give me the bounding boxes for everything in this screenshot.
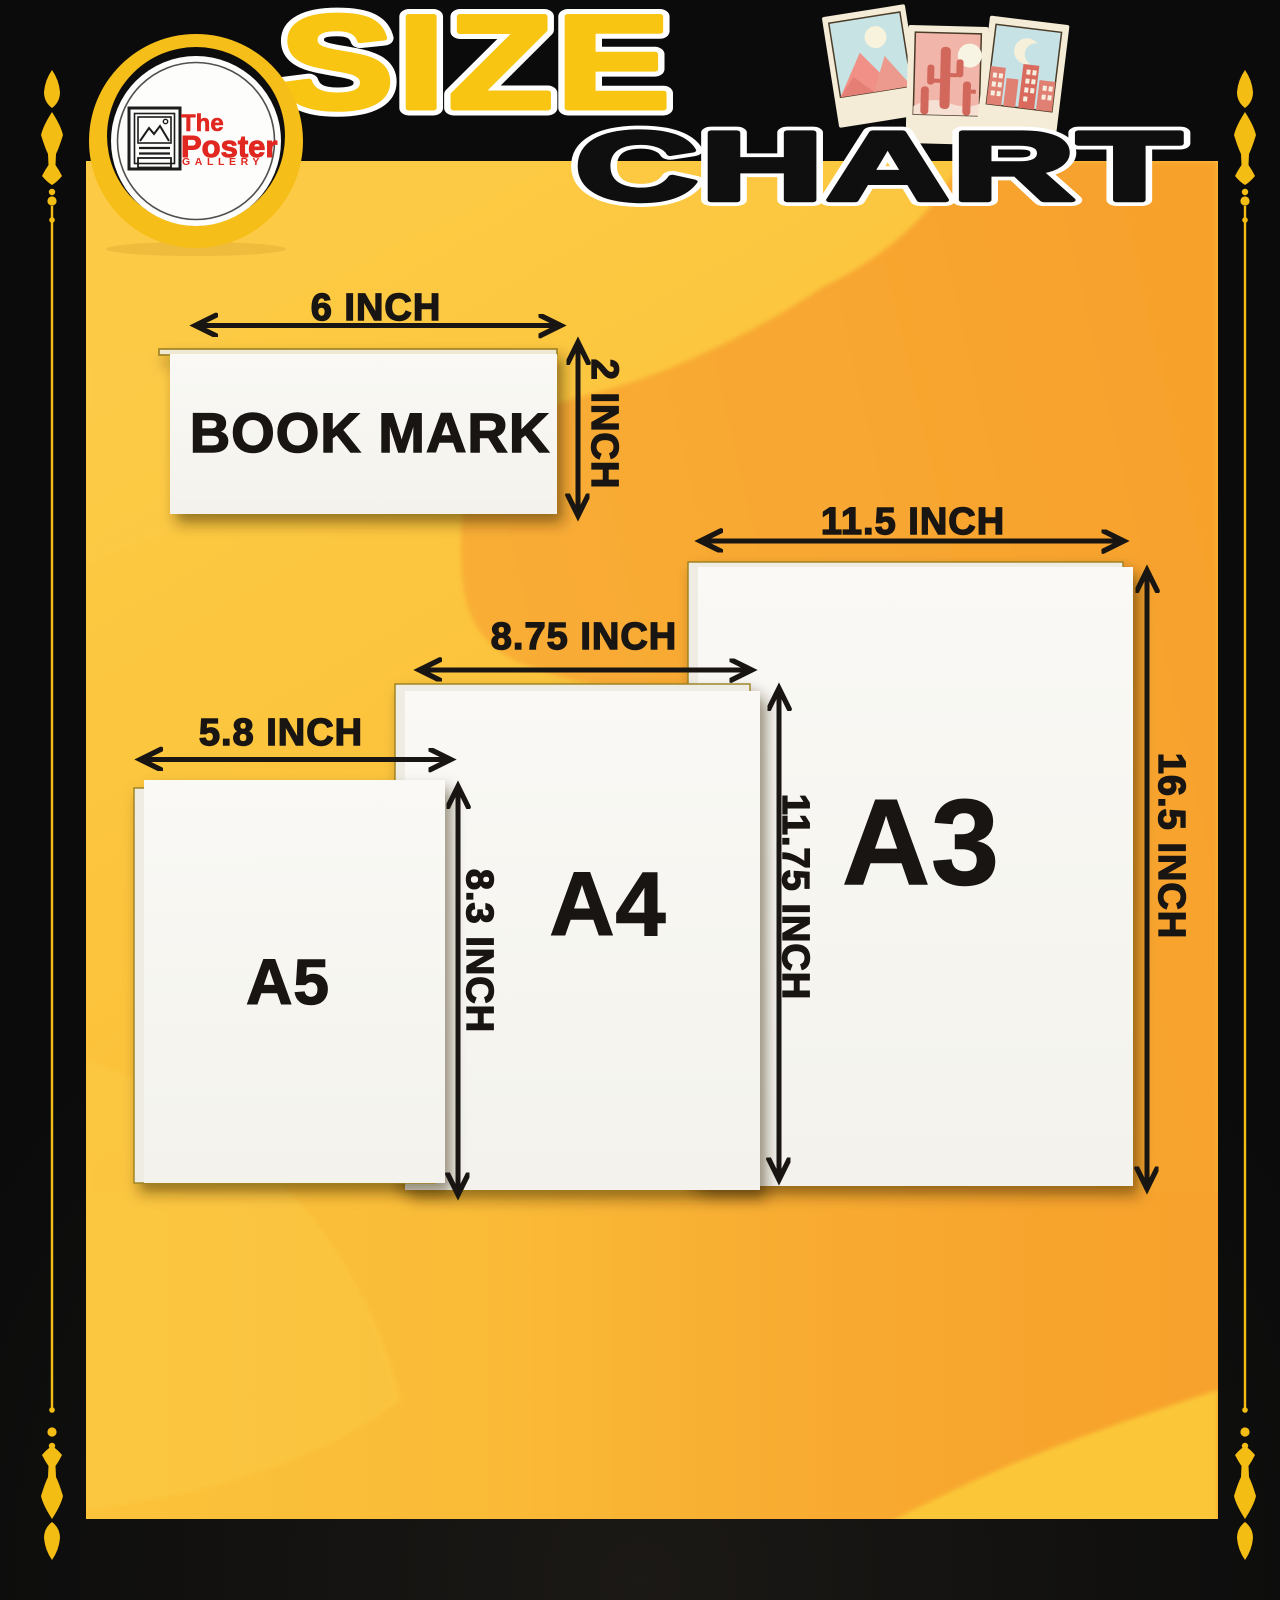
svg-text:A4: A4 bbox=[549, 855, 666, 955]
svg-text:A3: A3 bbox=[842, 774, 1000, 910]
svg-text:5.8 INCH: 5.8 INCH bbox=[199, 712, 363, 754]
svg-text:6 INCH: 6 INCH bbox=[311, 287, 442, 329]
svg-text:11.5 INCH: 11.5 INCH bbox=[821, 501, 1005, 543]
svg-text:2 INCH: 2 INCH bbox=[583, 359, 625, 490]
svg-text:8.75 INCH: 8.75 INCH bbox=[491, 616, 677, 658]
svg-text:A5: A5 bbox=[246, 946, 330, 1018]
svg-text:16.5 INCH: 16.5 INCH bbox=[1150, 753, 1192, 939]
svg-text:11.75 INCH: 11.75 INCH bbox=[774, 794, 816, 1000]
svg-text:CHART: CHART bbox=[575, 112, 1184, 221]
svg-text:BOOK MARK: BOOK MARK bbox=[190, 401, 551, 464]
svg-text:8.3 INCH: 8.3 INCH bbox=[458, 869, 500, 1033]
svg-text:GALLERY: GALLERY bbox=[182, 156, 264, 168]
